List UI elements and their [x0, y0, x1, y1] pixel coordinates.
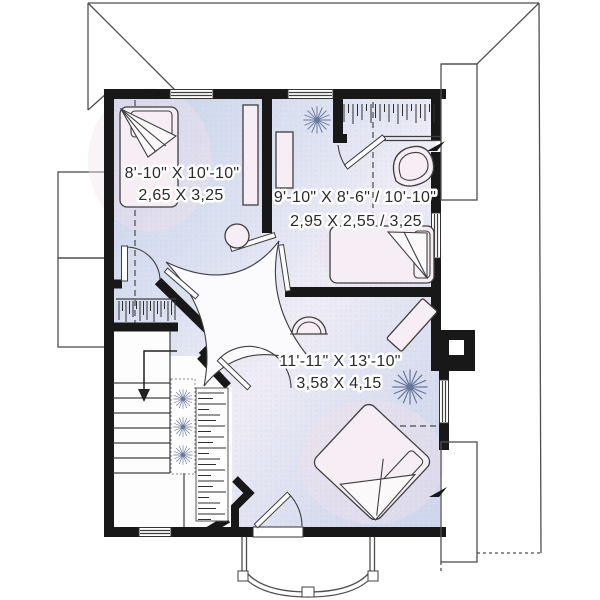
window-right-lower	[440, 380, 449, 423]
window-top-right	[288, 90, 333, 99]
roof-dormers	[427, 64, 541, 574]
bed-right	[330, 226, 434, 283]
balcony-railing	[238, 537, 378, 597]
right-roof-edge	[539, 3, 541, 553]
round-table	[225, 224, 249, 248]
bedroom-master-dimensions-imperial: 11'-11" X 13'-10"	[279, 353, 401, 370]
floor-plan-page: 8'-10" X 10'-10" 2,65 X 3,25 9'-10" X 8'…	[0, 0, 600, 600]
bedroom-master-dimensions-metric: 3,58 X 4,15	[296, 375, 381, 392]
window-bottom-left	[139, 528, 171, 537]
bedroom-right-dimensions-imperial: 9'-10" X 8'-6" / 10'-10"	[274, 189, 436, 206]
window-top-left	[170, 90, 213, 99]
closet-hall	[196, 388, 228, 521]
bedroom-left-dimensions-imperial: 8'-10" X 10'-10"	[125, 165, 240, 182]
corner-chair	[393, 146, 433, 186]
dresser-right	[276, 132, 293, 188]
dresser-left	[243, 105, 258, 205]
floor-plan-drawing: 8'-10" X 10'-10" 2,65 X 3,25 9'-10" X 8'…	[0, 0, 600, 600]
bedroom-right-dimensions-metric: 2,95 X 2,55 / 3,25	[290, 213, 422, 230]
balcony-door-opening	[253, 527, 303, 537]
bedroom-left-dimensions-metric: 2,65 X 3,25	[138, 187, 223, 204]
